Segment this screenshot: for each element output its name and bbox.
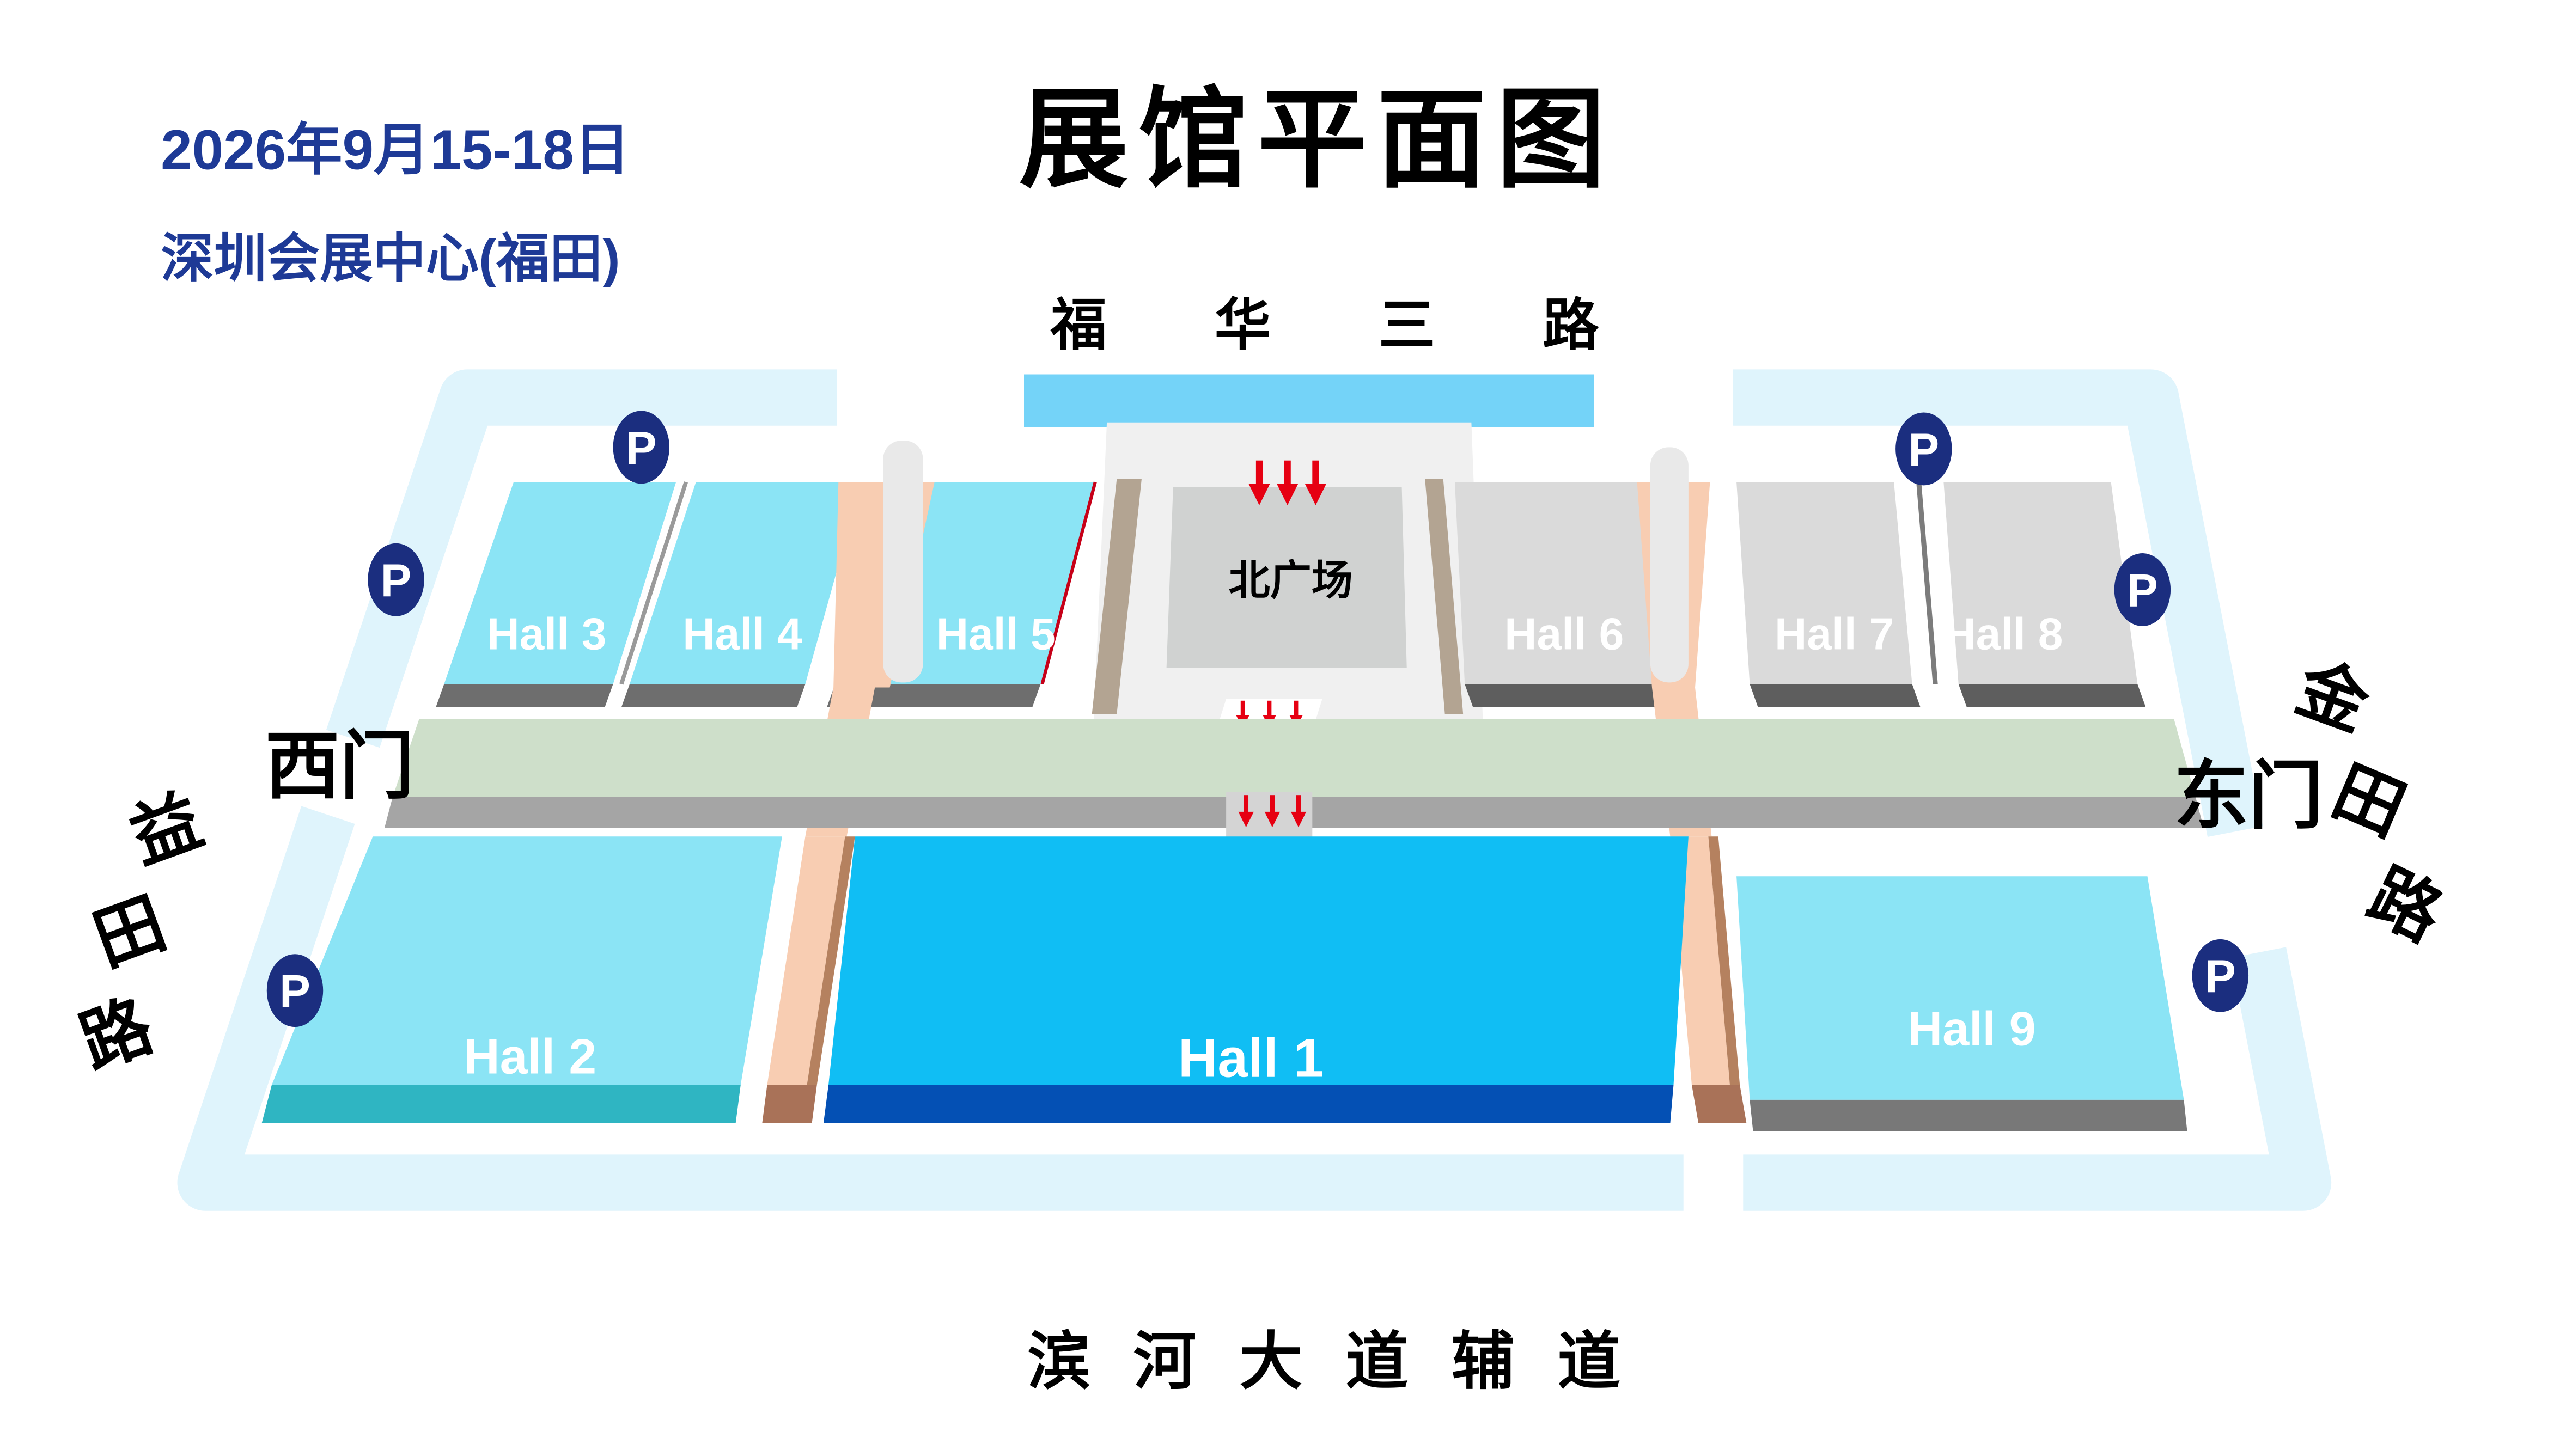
parking-icon-letter: P xyxy=(626,423,657,474)
walkway-west-tip xyxy=(762,1085,816,1123)
road-right-char: 田 xyxy=(2322,752,2416,851)
hall-6-label: Hall 6 xyxy=(1504,609,1624,659)
hall-3-shadow xyxy=(436,684,613,707)
hall-8-label: Hall 8 xyxy=(1943,609,2063,659)
parking-icon-letter: P xyxy=(2127,565,2158,616)
east-gate-label: 东门 xyxy=(2174,755,2323,838)
event-venue: 深圳会展中心(福田) xyxy=(161,229,620,288)
hall-7-shadow xyxy=(1750,684,1920,707)
parking-icon-letter: P xyxy=(2205,951,2236,1002)
hall-3-label: Hall 3 xyxy=(487,609,606,659)
hall-9-label: Hall 9 xyxy=(1907,1002,2035,1056)
road-left-char: 路 xyxy=(70,986,163,1083)
road-left-char: 益 xyxy=(120,781,212,878)
hall-7-8-separator xyxy=(1919,482,1935,684)
road-right-char: 路 xyxy=(2357,855,2454,956)
hall-9-shadow xyxy=(1750,1100,2187,1131)
entrance-south xyxy=(1226,792,1312,843)
walkway-west-graybar xyxy=(883,441,923,682)
parking-icon-letter: P xyxy=(381,555,412,607)
walkway-east-graybar xyxy=(1650,447,1689,682)
walkway-east-tip xyxy=(1692,1085,1746,1123)
parking-icon-letter: P xyxy=(1908,424,1939,476)
fuhua-road-bar xyxy=(1024,375,1594,427)
north-plaza-label: 北广场 xyxy=(1229,558,1353,604)
hall-2-label: Hall 2 xyxy=(464,1029,596,1084)
hall-9-shape xyxy=(1736,876,2184,1100)
hall-4-shadow xyxy=(621,684,806,707)
hall-6-shadow xyxy=(1465,684,1665,707)
road-name-left: 益 田 路 xyxy=(70,781,212,1083)
west-gate-label: 西门 xyxy=(265,725,415,808)
road-left-char: 田 xyxy=(84,884,176,981)
road-name-bottom: 滨河大道辅道 xyxy=(1027,1326,1663,1397)
corridor-top xyxy=(393,719,2196,797)
event-date: 2026年9月15-18日 xyxy=(161,118,630,181)
north-plaza: 北广场 xyxy=(1092,423,1483,724)
page-title: 展馆平面图 xyxy=(1019,78,1616,201)
hall-4-label: Hall 4 xyxy=(682,609,802,659)
parking-icon: P xyxy=(267,954,323,1027)
parking-icon: P xyxy=(1895,412,1952,485)
exhibition-floorplan: 北广场 xyxy=(0,0,2560,1456)
hall-5-label: Hall 5 xyxy=(936,609,1056,659)
parking-icon-letter: P xyxy=(279,966,310,1018)
hall-2-shadow xyxy=(262,1085,741,1123)
hall-7-label: Hall 7 xyxy=(1775,609,1894,659)
hall-1-label: Hall 1 xyxy=(1178,1027,1324,1088)
parking-icon: P xyxy=(368,543,424,616)
hall-8-shadow xyxy=(1959,684,2146,707)
hall-1-shadow xyxy=(824,1085,1674,1123)
parking-icon: P xyxy=(2192,939,2248,1012)
road-right-char: 金 xyxy=(2286,648,2379,745)
parking-icon: P xyxy=(2114,553,2171,626)
road-name-top: 福华三路 xyxy=(1050,293,1707,357)
parking-icon: P xyxy=(613,411,669,484)
entrance-arrows-top xyxy=(1248,461,1326,505)
